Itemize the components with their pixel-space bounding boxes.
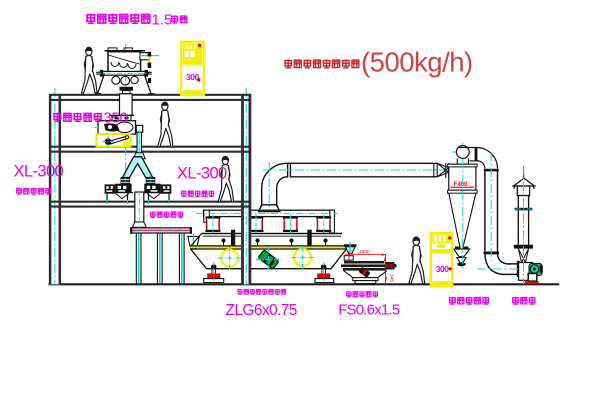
svg-text:1.5: 1.5 (152, 12, 173, 29)
svg-text:345: 345 (389, 274, 395, 282)
svg-text:ZLG6x0.75: ZLG6x0.75 (226, 302, 297, 319)
svg-text:300: 300 (436, 264, 449, 274)
svg-text:XL-300: XL-300 (14, 163, 64, 181)
svg-text:FS0.6x1.5: FS0.6x1.5 (338, 302, 400, 319)
svg-text:350: 350 (104, 111, 128, 127)
svg-text:(500kg/h): (500kg/h) (361, 47, 473, 78)
svg-text:1500: 1500 (359, 249, 370, 255)
svg-text:XL-300: XL-300 (177, 165, 227, 183)
svg-text:F400: F400 (454, 182, 468, 188)
